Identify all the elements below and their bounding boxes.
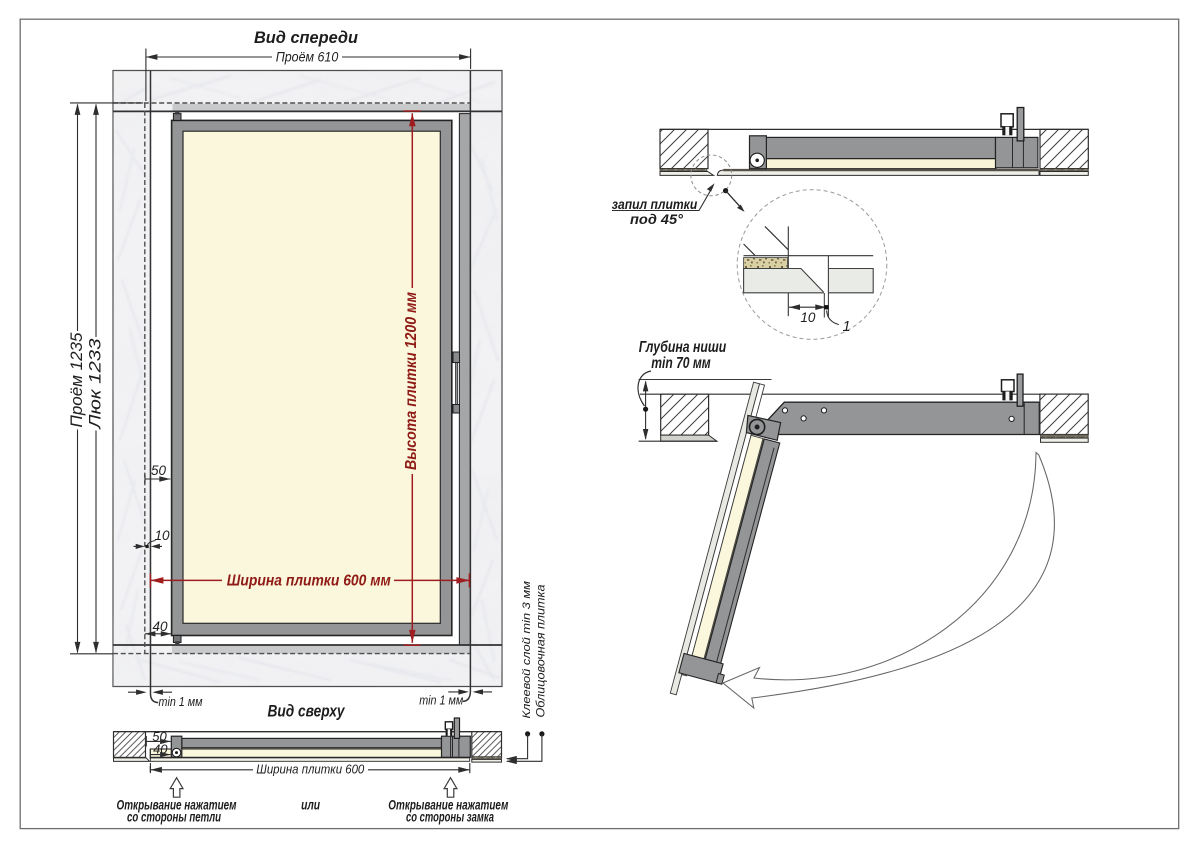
svg-text:min 1 мм: min 1 мм — [419, 694, 463, 708]
svg-text:или: или — [301, 798, 321, 813]
svg-text:Клеевой слой min 3 мм: Клеевой слой min 3 мм — [521, 581, 533, 719]
svg-text:10: 10 — [800, 310, 816, 325]
svg-text:50: 50 — [151, 463, 167, 478]
svg-text:1: 1 — [842, 319, 850, 335]
svg-text:Глубина ниши: Глубина ниши — [639, 339, 727, 356]
svg-text:Высота плитки 1200 мм: Высота плитки 1200 мм — [403, 292, 420, 470]
svg-text:Люк 1233: Люк 1233 — [86, 338, 105, 430]
svg-text:Вид спереди: Вид спереди — [254, 29, 358, 47]
svg-text:Ширина плитки 600: Ширина плитки 600 — [256, 762, 365, 777]
svg-text:min 1 мм: min 1 мм — [159, 695, 203, 709]
svg-text:со стороны замка: со стороны замка — [406, 810, 494, 825]
svg-text:Проём 610: Проём 610 — [276, 50, 339, 65]
svg-text:под 45°: под 45° — [630, 211, 683, 227]
svg-text:Ширина плитки 600 мм: Ширина плитки 600 мм — [227, 572, 391, 589]
svg-text:со стороны петли: со стороны петли — [127, 810, 222, 825]
svg-text:min 70 мм: min 70 мм — [651, 355, 711, 372]
svg-text:Проём 1235: Проём 1235 — [67, 332, 86, 428]
svg-text:Облицовочная плитка: Облицовочная плитка — [533, 584, 547, 717]
svg-text:запил плитки: запил плитки — [612, 196, 698, 212]
svg-text:Вид сверху: Вид сверху — [268, 703, 346, 721]
svg-text:10: 10 — [154, 528, 170, 543]
